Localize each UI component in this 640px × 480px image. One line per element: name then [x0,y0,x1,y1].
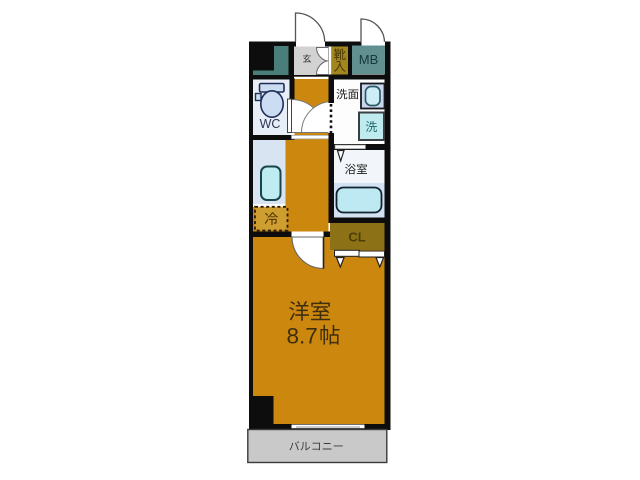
svg-text:CL: CL [348,230,365,245]
svg-text:WC: WC [260,117,281,131]
svg-text:MB: MB [359,52,379,67]
svg-text:8.7: 8.7 [287,324,318,349]
